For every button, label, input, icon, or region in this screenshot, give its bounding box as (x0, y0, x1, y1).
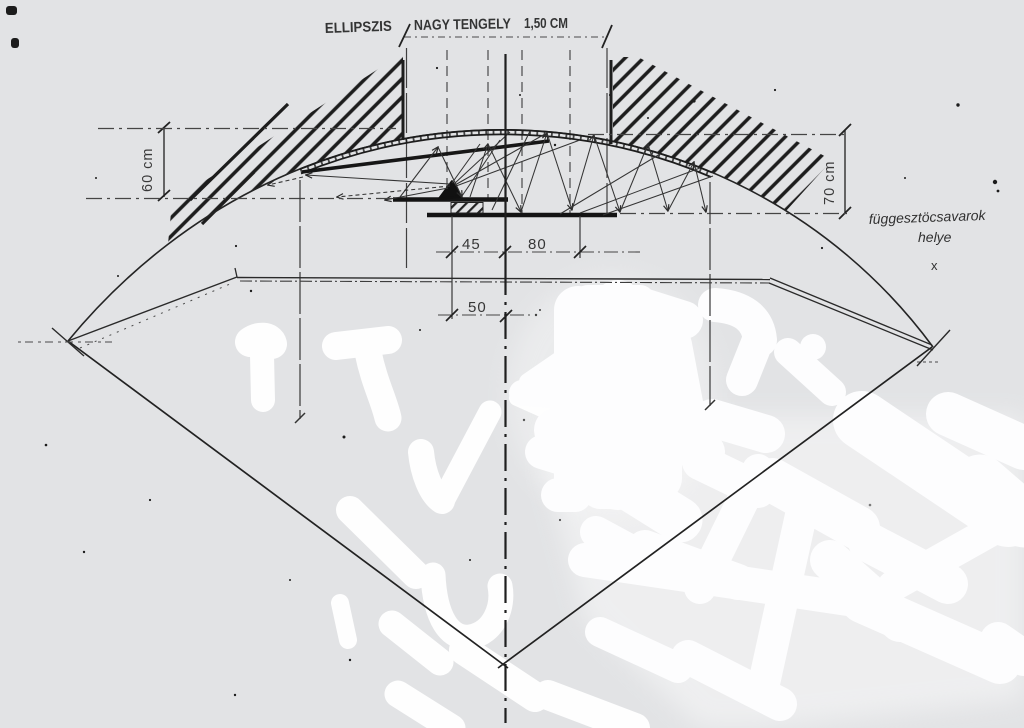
svg-text:ELLIPSZIS: ELLIPSZIS (325, 19, 393, 37)
svg-text:50: 50 (468, 299, 487, 316)
svg-text:1,50 CM: 1,50 CM (524, 16, 568, 32)
svg-text:80: 80 (528, 236, 547, 253)
svg-text:NAGY TENGELY: NAGY TENGELY (414, 16, 512, 34)
svg-text:60 cm: 60 cm (140, 148, 156, 193)
svg-text:45: 45 (462, 236, 481, 253)
svg-text:helye: helye (918, 229, 952, 245)
svg-text:x: x (931, 258, 938, 273)
svg-text:70 cm: 70 cm (822, 161, 838, 206)
